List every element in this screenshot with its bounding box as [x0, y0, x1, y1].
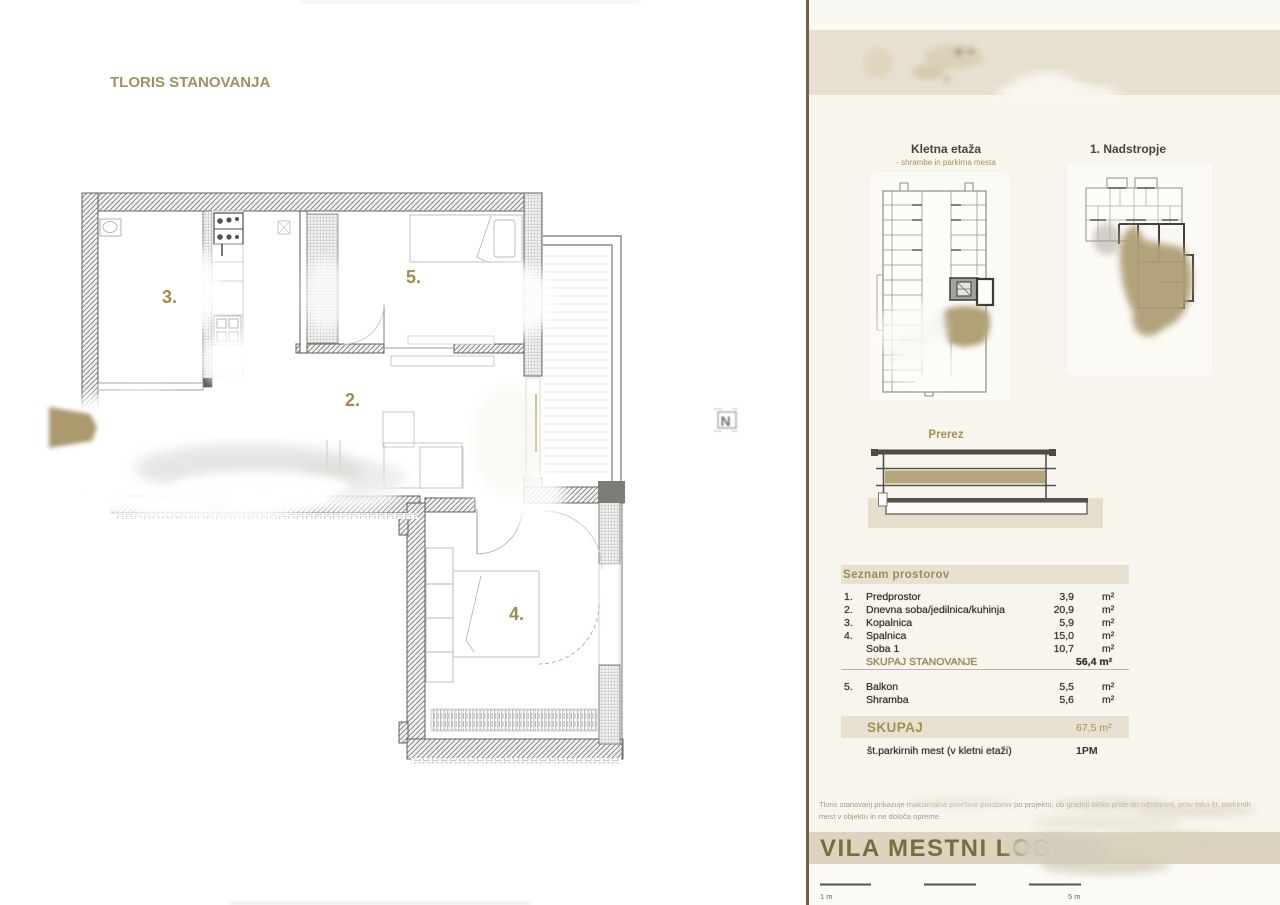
svg-text:3.: 3. [162, 287, 177, 307]
svg-text:4.: 4. [509, 604, 524, 624]
svg-text:TLORIS STANOVANJA: TLORIS STANOVANJA [110, 74, 270, 91]
svg-text:5 m: 5 m [1068, 892, 1081, 901]
svg-text:N: N [721, 413, 731, 429]
svg-text:E: E [944, 74, 951, 85]
svg-text:1 m: 1 m [820, 892, 833, 901]
svg-text:5.: 5. [406, 267, 421, 287]
svg-text:2.: 2. [345, 390, 360, 410]
